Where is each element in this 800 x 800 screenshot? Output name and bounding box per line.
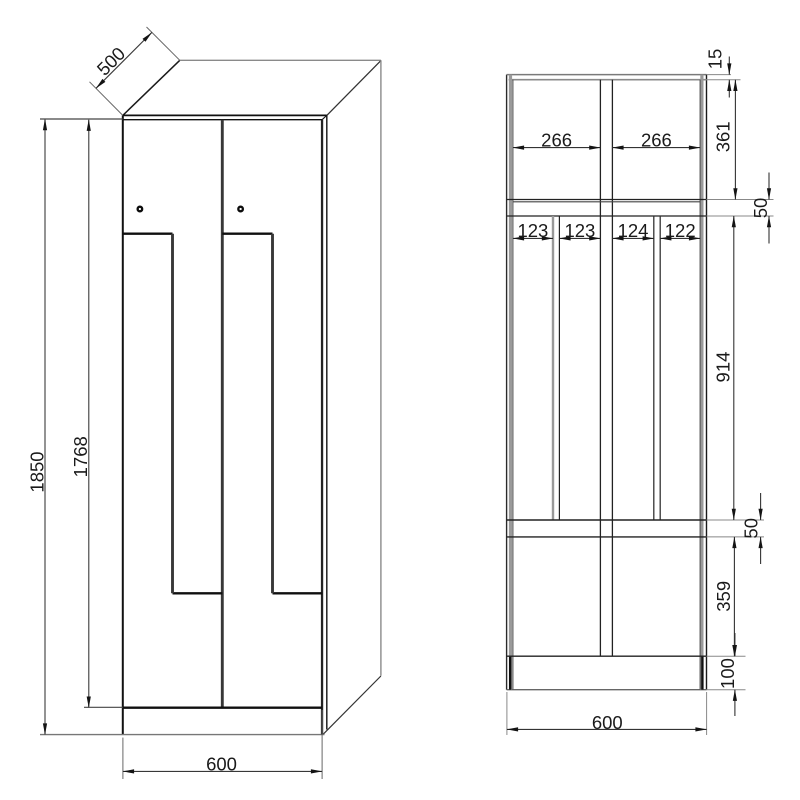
svg-text:500: 500: [93, 43, 130, 80]
svg-text:124: 124: [618, 220, 649, 241]
svg-text:123: 123: [517, 220, 548, 241]
svg-text:1768: 1768: [70, 436, 91, 477]
svg-text:122: 122: [665, 220, 696, 241]
svg-text:1850: 1850: [27, 451, 48, 492]
svg-text:50: 50: [740, 518, 761, 539]
svg-text:361: 361: [712, 121, 733, 152]
svg-text:600: 600: [206, 753, 237, 774]
svg-text:266: 266: [641, 129, 672, 150]
svg-text:359: 359: [713, 581, 734, 612]
svg-text:100: 100: [717, 658, 738, 689]
svg-text:50: 50: [750, 198, 771, 219]
svg-text:914: 914: [712, 352, 733, 383]
svg-text:266: 266: [541, 129, 572, 150]
svg-text:15: 15: [705, 49, 726, 70]
svg-text:123: 123: [564, 220, 595, 241]
svg-text:600: 600: [592, 712, 623, 733]
